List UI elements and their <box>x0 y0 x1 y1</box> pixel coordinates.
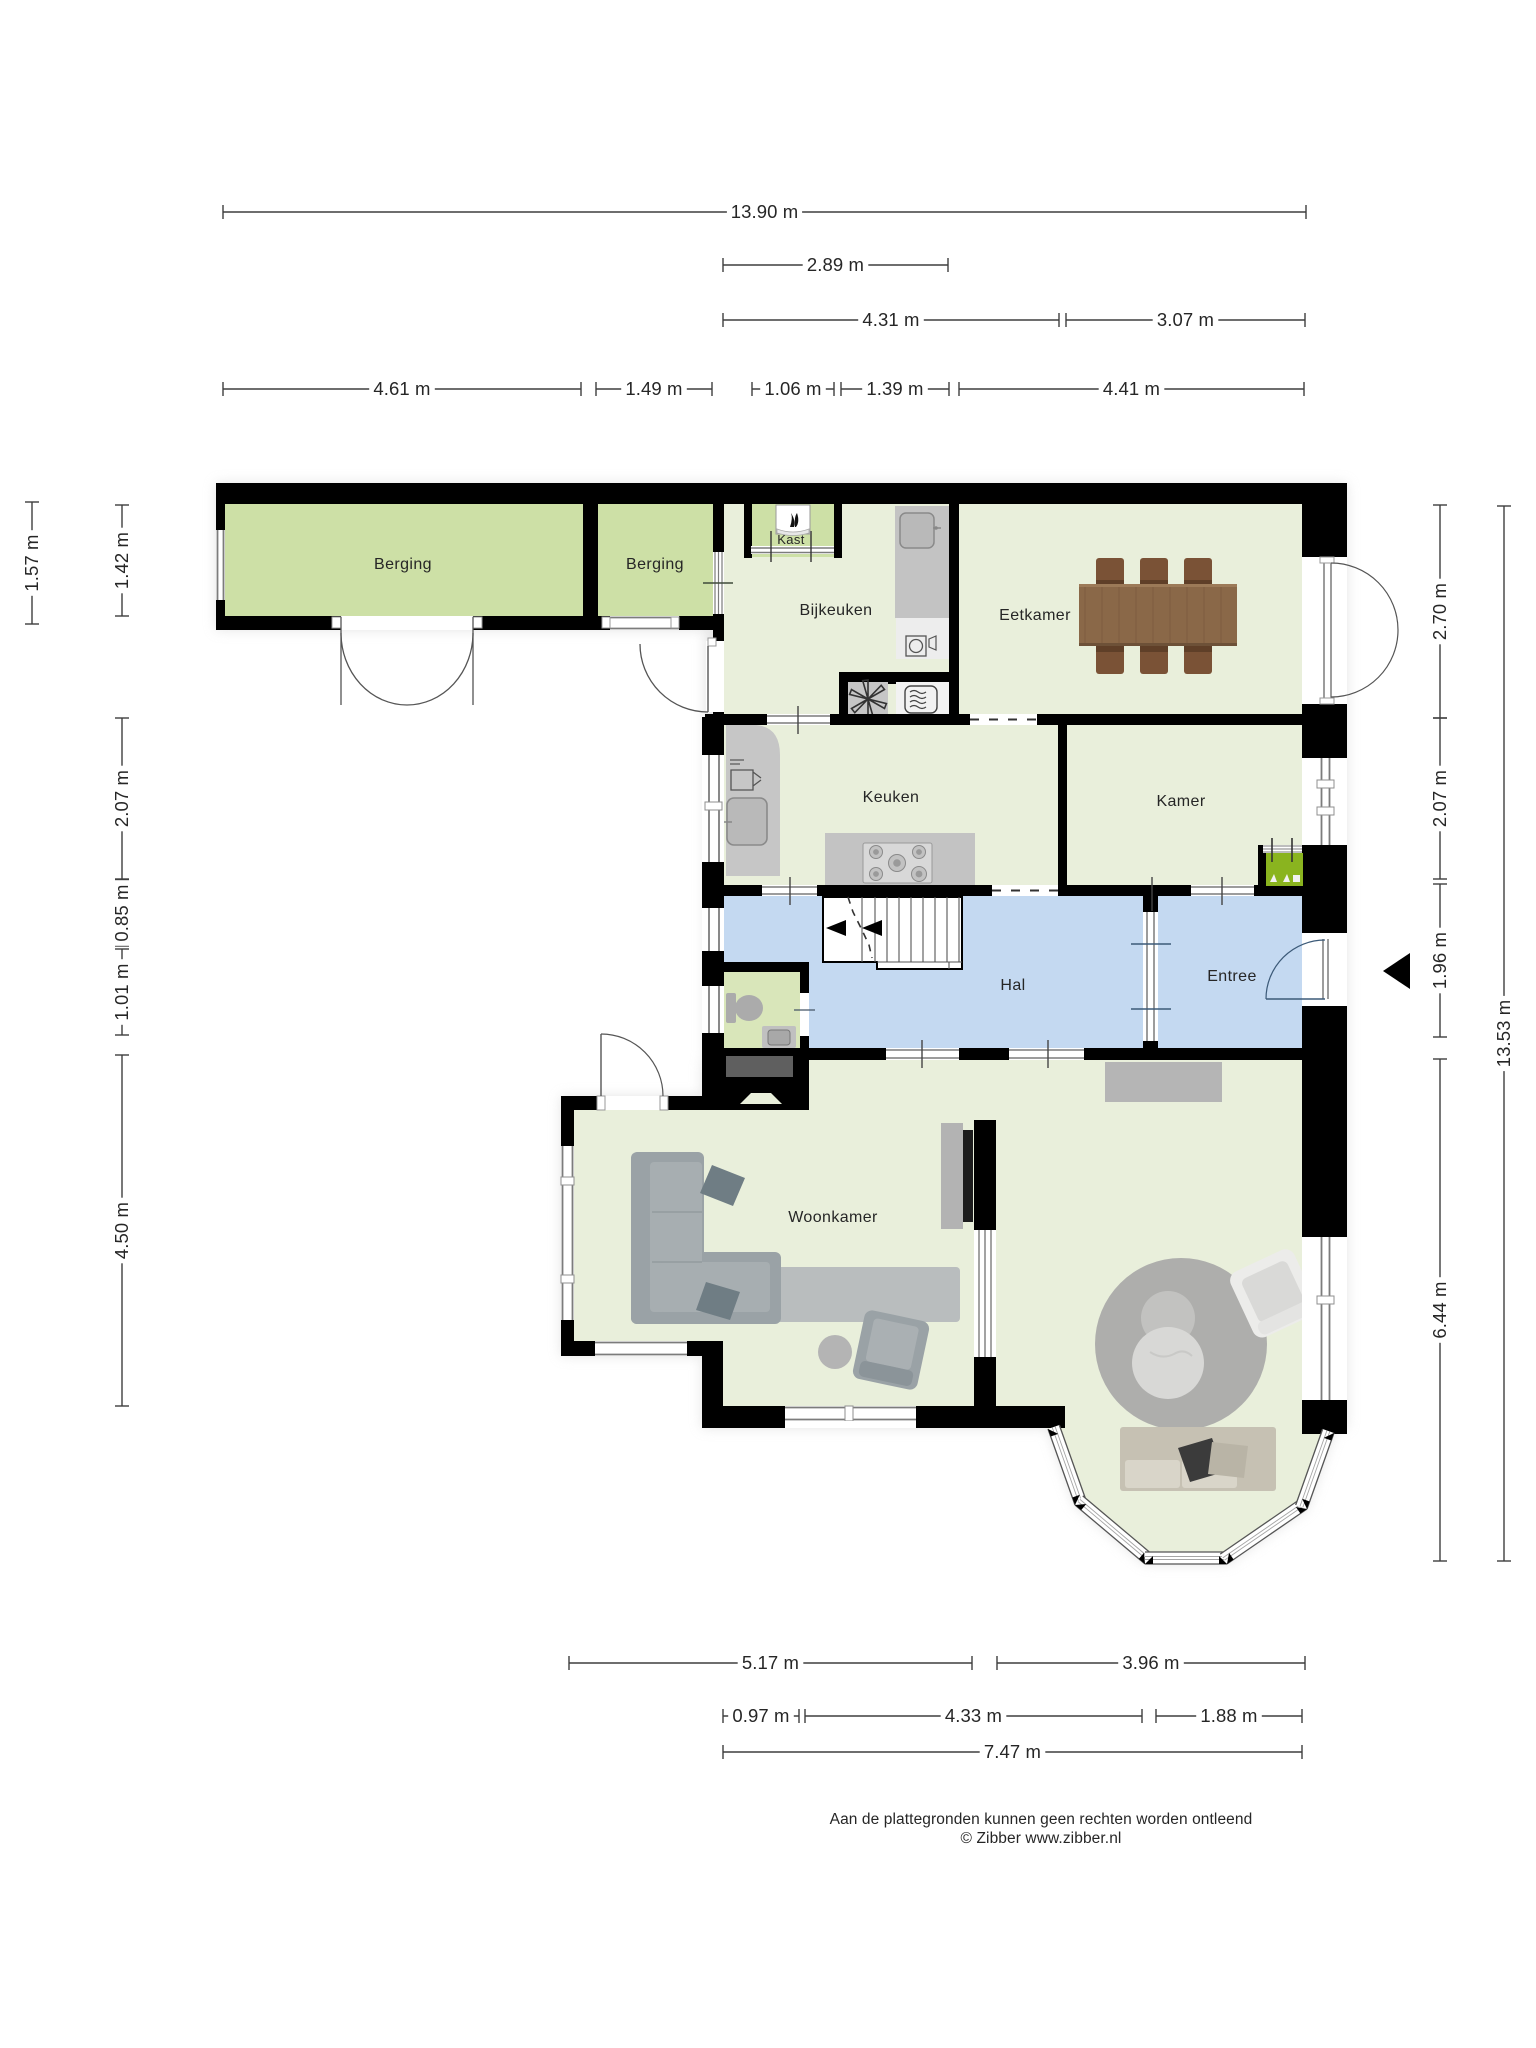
svg-text:Aan de plattegronden kunnen ge: Aan de plattegronden kunnen geen rechten… <box>830 1811 1253 1828</box>
svg-text:5.17 m: 5.17 m <box>742 1652 799 1673</box>
svg-text:4.33 m: 4.33 m <box>945 1705 1002 1726</box>
svg-text:4.61 m: 4.61 m <box>373 378 430 399</box>
svg-text:1.39 m: 1.39 m <box>866 378 923 399</box>
svg-text:1.01 m: 1.01 m <box>111 963 132 1020</box>
svg-text:Kast: Kast <box>777 532 805 547</box>
svg-text:Keuken: Keuken <box>863 789 920 806</box>
svg-text:Entree: Entree <box>1207 968 1257 985</box>
svg-text:4.41 m: 4.41 m <box>1103 378 1160 399</box>
svg-text:13.53 m: 13.53 m <box>1493 1000 1514 1068</box>
svg-text:Eetkamer: Eetkamer <box>999 607 1071 624</box>
svg-text:4.50 m: 4.50 m <box>111 1202 132 1259</box>
svg-text:Hal: Hal <box>1000 977 1025 994</box>
svg-text:6.44 m: 6.44 m <box>1429 1281 1450 1338</box>
svg-text:2.07 m: 2.07 m <box>111 770 132 827</box>
svg-text:1.96 m: 1.96 m <box>1429 932 1450 989</box>
svg-text:© Zibber www.zibber.nl: © Zibber www.zibber.nl <box>961 1830 1122 1847</box>
svg-text:Berging: Berging <box>374 556 432 573</box>
svg-text:2.89 m: 2.89 m <box>807 254 864 275</box>
svg-text:1.06 m: 1.06 m <box>764 378 821 399</box>
svg-text:0.97 m: 0.97 m <box>732 1705 789 1726</box>
svg-text:2.07 m: 2.07 m <box>1429 770 1450 827</box>
svg-text:4.31 m: 4.31 m <box>862 309 919 330</box>
svg-text:Bijkeuken: Bijkeuken <box>800 602 873 619</box>
svg-text:3.07 m: 3.07 m <box>1157 309 1214 330</box>
svg-text:2.70 m: 2.70 m <box>1429 583 1450 640</box>
svg-text:1.49 m: 1.49 m <box>625 378 682 399</box>
svg-text:3.96 m: 3.96 m <box>1122 1652 1179 1673</box>
svg-text:0.85 m: 0.85 m <box>111 884 132 941</box>
svg-text:Woonkamer: Woonkamer <box>788 1209 878 1226</box>
svg-text:7.47 m: 7.47 m <box>984 1741 1041 1762</box>
svg-text:1.42 m: 1.42 m <box>111 532 132 589</box>
svg-text:1.57 m: 1.57 m <box>21 534 42 591</box>
svg-text:1.88 m: 1.88 m <box>1200 1705 1257 1726</box>
svg-text:Berging: Berging <box>626 556 684 573</box>
svg-text:13.90 m: 13.90 m <box>731 201 799 222</box>
svg-text:Kamer: Kamer <box>1156 793 1205 810</box>
